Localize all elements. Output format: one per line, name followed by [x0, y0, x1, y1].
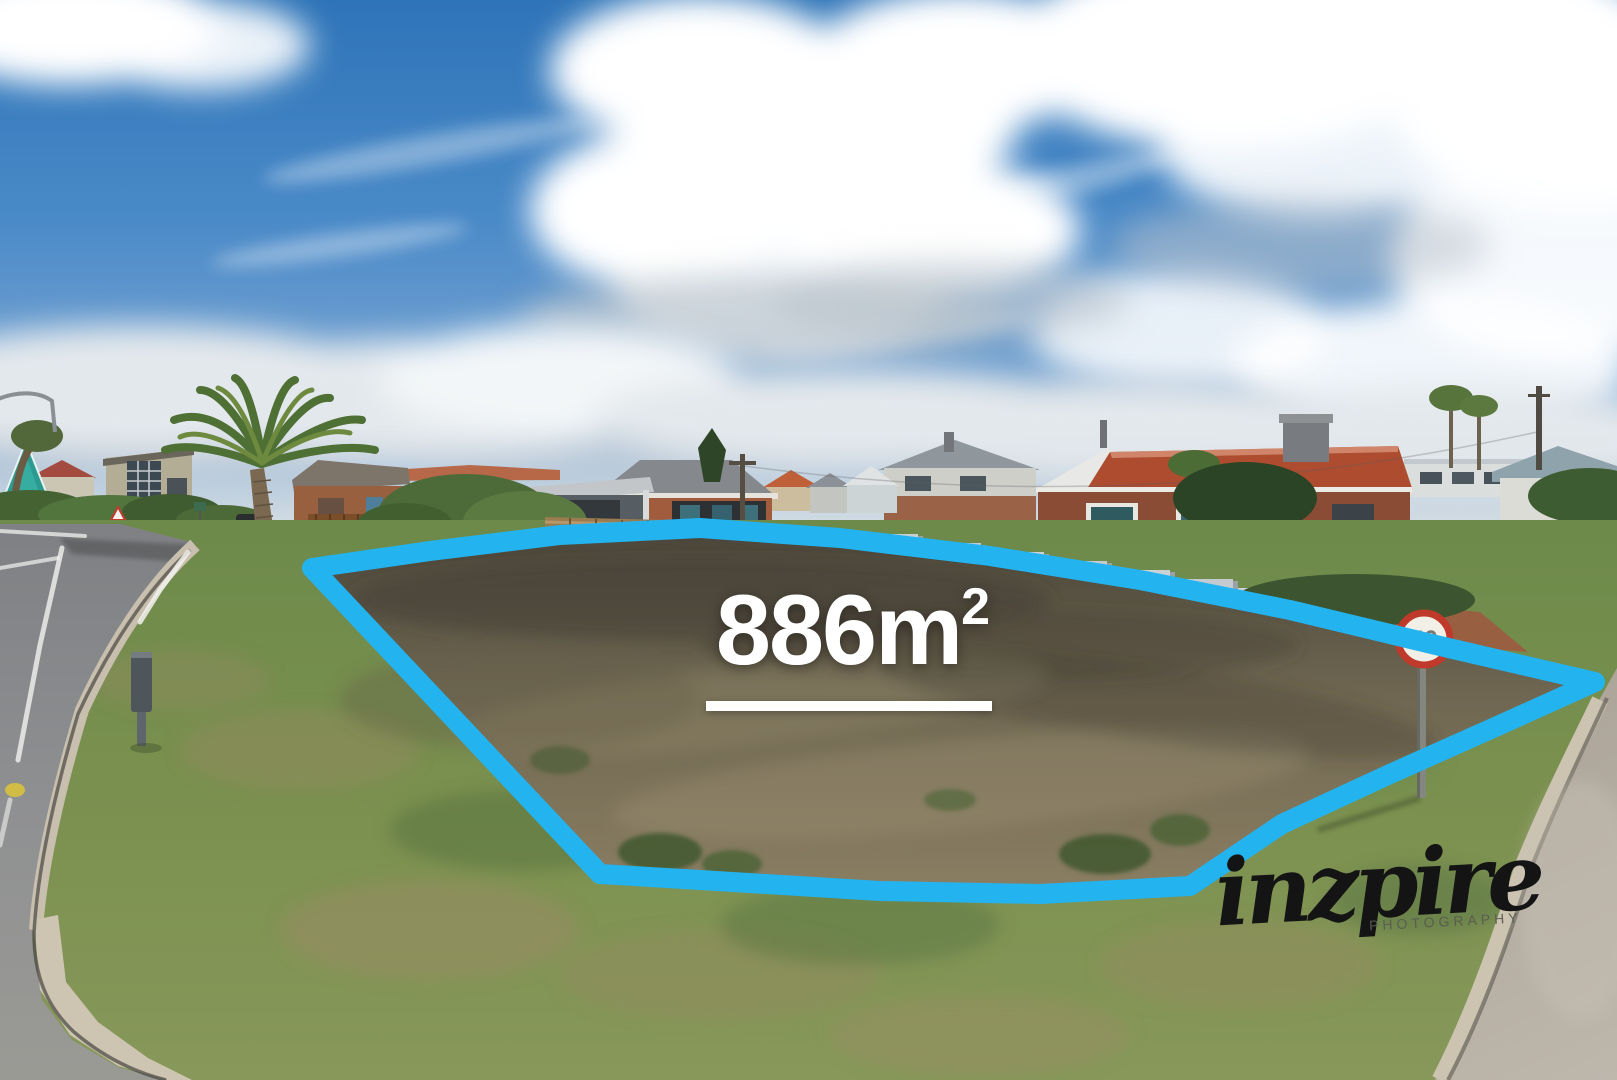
area-label: 886m2: [688, 580, 1018, 679]
listing-photo: 40 886m2 inzpire PHOTOGRAPHY: [0, 0, 1617, 1080]
area-superscript: 2: [961, 578, 990, 636]
area-underline: [706, 701, 992, 711]
watermark: inzpire PHOTOGRAPHY: [1213, 829, 1577, 942]
area-value: 886m: [716, 574, 961, 685]
yellow-paint-mark: [5, 783, 25, 797]
